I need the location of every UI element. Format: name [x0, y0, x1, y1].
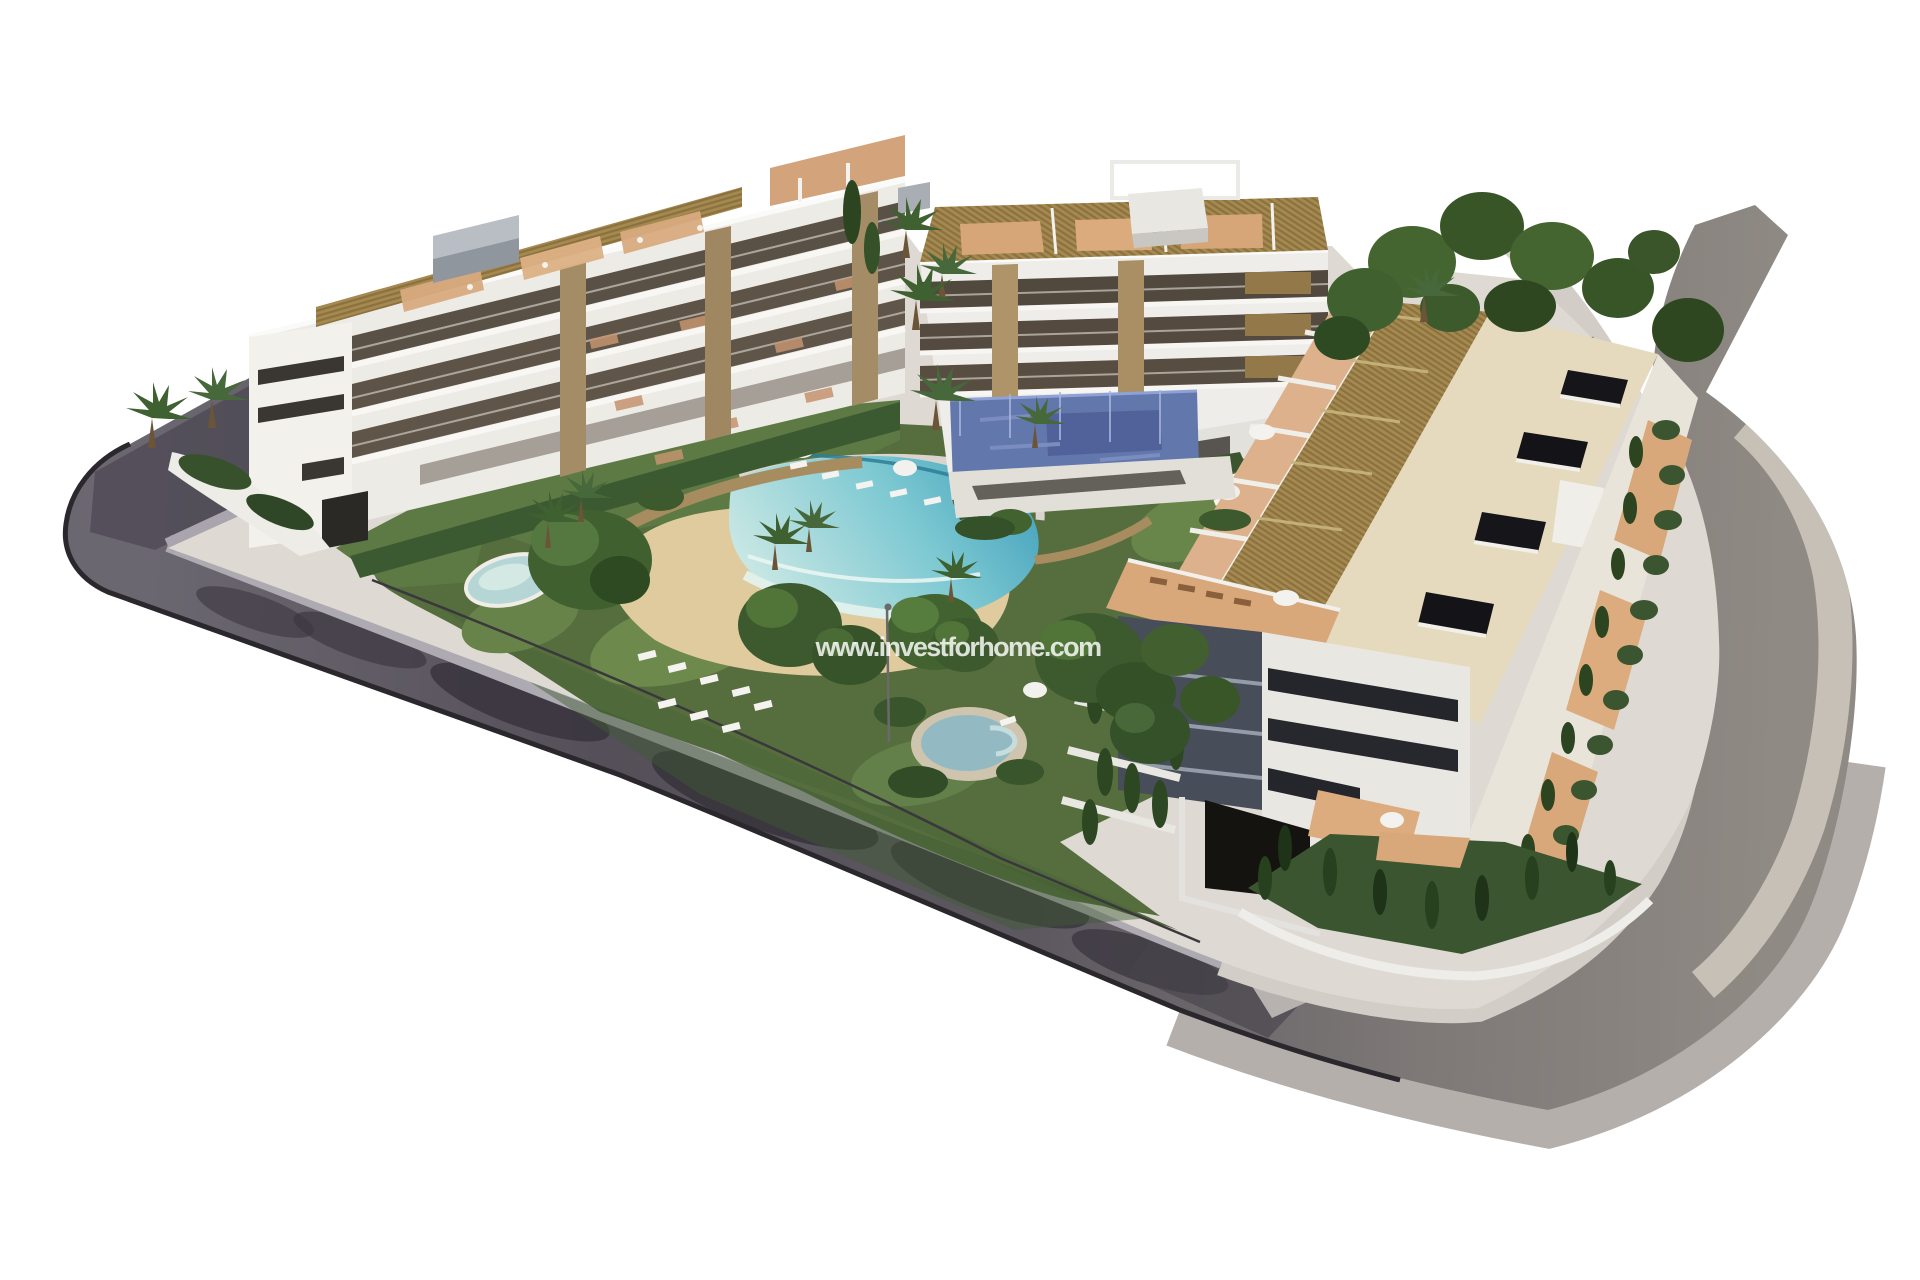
svg-text:www.investforhome.com: www.investforhome.com — [815, 632, 1102, 662]
